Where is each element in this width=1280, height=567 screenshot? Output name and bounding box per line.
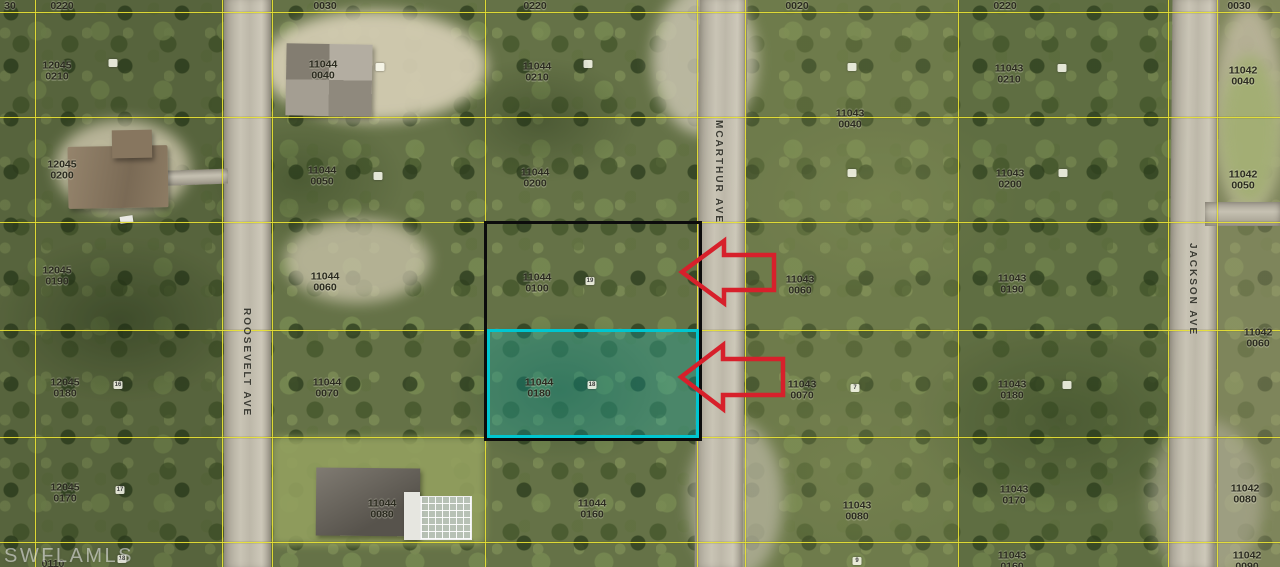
- lot-marker: [848, 63, 857, 71]
- lot-marker: [374, 172, 383, 180]
- parcel-label: 120450180: [50, 378, 79, 399]
- street-label-jackson: JACKSON AVE: [1187, 243, 1198, 336]
- lot-marker: [848, 169, 857, 177]
- parcel-label: 110440050: [308, 166, 337, 187]
- parcel-label: 0220: [523, 1, 546, 12]
- parcel-label: 110430210: [995, 64, 1024, 85]
- parcel-label: 110440060: [311, 272, 340, 293]
- parcel-label: 110440210: [523, 62, 552, 83]
- lot-marker: 19: [586, 277, 595, 285]
- aerial-parcel-map: ROOSEVELT AVE MCARTHUR AVE JACKSON AVE 3…: [0, 0, 1280, 567]
- lot-marker: [1063, 381, 1072, 389]
- parcel-label: 110420040: [1229, 66, 1258, 87]
- street-label-roosevelt: ROOSEVELT AVE: [241, 308, 252, 417]
- parcel-label: 110440080: [368, 499, 397, 520]
- lot-marker: 16: [114, 381, 123, 389]
- lot-marker: 7: [851, 384, 860, 392]
- lot-marker: [1058, 64, 1067, 72]
- parcel-label: 120450170: [50, 483, 79, 504]
- lot-marker: [1059, 169, 1068, 177]
- parcel-label: 0220: [993, 1, 1016, 12]
- lot-marker: [584, 60, 593, 68]
- parcel-label: 110430070: [788, 380, 817, 401]
- parcel-label: 0030: [1227, 1, 1250, 12]
- parcel-label: 110430060: [786, 275, 815, 296]
- parcel-label: 0220: [50, 1, 73, 12]
- parcel-label: 0020: [785, 1, 808, 12]
- parcel-label: 120450190: [42, 266, 71, 287]
- lot-marker: 9: [853, 557, 862, 565]
- lot-marker: 18: [588, 381, 597, 389]
- parcel-label: 120450210: [42, 61, 71, 82]
- parcel-label: 110430190: [998, 274, 1027, 295]
- parcel-label: 110430200: [996, 169, 1025, 190]
- parcel-label: 110420080: [1231, 484, 1260, 505]
- parcel-label: 120450200: [47, 160, 76, 181]
- swfl-mls-watermark: SWFLAMLS: [4, 545, 134, 567]
- lot-marker: 17: [116, 486, 125, 494]
- lot-marker: [109, 59, 118, 67]
- parcel-label: 110430170: [1000, 485, 1029, 506]
- parcel-label: 110440160: [578, 499, 607, 520]
- lot-marker: [376, 63, 385, 71]
- parcel-label: 110430040: [836, 109, 865, 130]
- parcel-label: 110430080: [843, 501, 872, 522]
- parcel-label: 110440040: [309, 60, 338, 81]
- parcel-label: 110420060: [1244, 328, 1273, 349]
- parcel-label: 30: [4, 1, 16, 12]
- parcel-label: 110430180: [998, 380, 1027, 401]
- parcel-label: 0030: [313, 1, 336, 12]
- red-arrow-annotations: [0, 0, 1280, 567]
- parcel-label: 110420090: [1233, 551, 1262, 567]
- parcel-label: 110440180: [525, 378, 554, 399]
- red-arrow-icon: [681, 345, 783, 409]
- street-label-mcarthur: MCARTHUR AVE: [713, 120, 724, 224]
- parcel-label: 110440200: [521, 168, 550, 189]
- parcel-label: 110430160: [998, 551, 1027, 567]
- parcel-label: 110420050: [1229, 170, 1258, 191]
- red-arrow-icon: [682, 241, 774, 303]
- parcel-label: 110440070: [313, 378, 342, 399]
- parcel-label: 110440100: [523, 273, 552, 294]
